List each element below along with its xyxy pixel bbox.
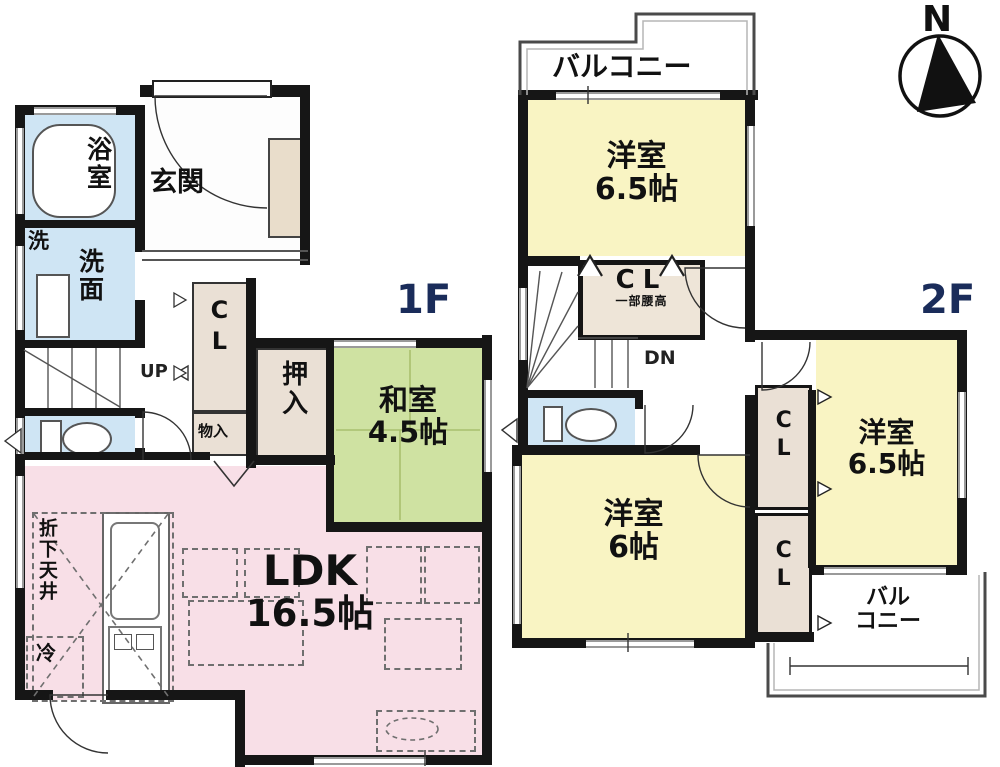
- stairs-up-label: UP: [140, 362, 168, 382]
- toilet-tank-1f: [40, 420, 62, 456]
- cl-2f-label: CL 一部腰高: [578, 266, 705, 308]
- wall-segment: [522, 390, 643, 398]
- balcony-bottom-label: バル コニー: [838, 586, 938, 634]
- washing-machine-pan: [36, 274, 70, 338]
- sofa-seat: [424, 546, 480, 604]
- window: [747, 126, 755, 226]
- ldk-size: 16.5帖: [220, 594, 400, 635]
- balcony-bottom-line2: コニー: [838, 610, 938, 634]
- vent-mark: [502, 419, 517, 442]
- bedroom-west-name: 洋室: [522, 498, 745, 531]
- lowered-ceiling-label: 折下天井: [36, 518, 57, 602]
- bedroom-west-label: 洋室 6帖: [522, 498, 745, 564]
- toilet-bowl-1f: [62, 422, 112, 456]
- closet-door-mark: [174, 366, 186, 380]
- wall-segment: [135, 408, 145, 418]
- floor-label-1f: 1F: [396, 278, 451, 322]
- bedroom-north-size: 6.5帖: [528, 173, 745, 206]
- floor-plan-canvas: 1F 玄関 浴室 洗 洗面 UP CL 物入 押入 和室 4.5帖 LDK 16…: [0, 0, 1000, 767]
- cl-lower-label: CL: [771, 538, 795, 594]
- ldk-name: LDK: [220, 548, 400, 594]
- wall-segment: [300, 85, 310, 265]
- window: [334, 340, 416, 348]
- wall-segment: [512, 445, 700, 455]
- wall-segment: [326, 522, 492, 532]
- compass-north-label: N: [922, 0, 952, 40]
- window: [824, 567, 946, 575]
- balcony-top-label: バルコニー: [552, 52, 691, 83]
- washitsu-size: 4.5帖: [334, 417, 482, 449]
- cl-1f-label: CL: [206, 296, 232, 358]
- bedroom-north-name: 洋室: [528, 140, 745, 173]
- window: [16, 128, 24, 214]
- floor-label-2f: 2F: [920, 278, 975, 322]
- cl-2f-name: CL: [578, 266, 705, 295]
- wall-segment: [15, 340, 145, 348]
- wall-segment: [755, 330, 967, 340]
- washroom-label: 洗面: [76, 248, 104, 304]
- genkan-step-line: [142, 259, 308, 261]
- fridge-label: 冷: [36, 642, 56, 664]
- cl-upper-label: CL: [771, 408, 795, 464]
- wall-segment: [752, 632, 814, 642]
- wall-segment: [135, 222, 145, 252]
- wall-segment: [326, 338, 334, 532]
- window: [16, 418, 24, 454]
- storage-label: 物入: [198, 423, 228, 440]
- window: [16, 476, 24, 588]
- bedroom-west-size: 6帖: [522, 531, 745, 564]
- cl-2f-note: 一部腰高: [578, 295, 705, 308]
- washitsu-name: 和室: [334, 385, 482, 417]
- window: [34, 107, 116, 115]
- compass-north-icon: [900, 34, 980, 116]
- stairs-dn-label: DN: [644, 348, 676, 369]
- window: [16, 246, 24, 330]
- window: [513, 466, 521, 624]
- oshiire-label: 押入: [278, 360, 307, 418]
- wall-segment: [246, 278, 256, 468]
- bedroom-east-label: 洋室 6.5帖: [816, 418, 957, 480]
- entrance-door-leaf: [152, 80, 272, 98]
- wall-segment: [15, 690, 53, 700]
- ldk-label: LDK 16.5帖: [220, 548, 400, 635]
- door-arc-bedroom-east: [762, 342, 810, 390]
- wall-segment: [135, 105, 145, 227]
- tv-board: [376, 710, 476, 752]
- window: [519, 288, 527, 360]
- genkan-step-line: [142, 250, 308, 252]
- window: [586, 640, 694, 648]
- laundry-label: 洗: [28, 230, 49, 253]
- wall-segment: [15, 408, 145, 416]
- wall-segment: [808, 390, 816, 568]
- bedroom-north-label: 洋室 6.5帖: [528, 140, 745, 206]
- wall-segment: [745, 395, 755, 648]
- window: [958, 392, 966, 498]
- toilet-bowl-2f: [565, 408, 617, 442]
- wall-segment: [518, 256, 580, 266]
- wall-segment: [106, 690, 245, 700]
- stairs-1f: [24, 348, 120, 408]
- window: [556, 92, 720, 100]
- toilet-tank-2f: [543, 406, 563, 442]
- bath-label: 浴室: [84, 136, 112, 192]
- shoe-cabinet: [268, 138, 302, 238]
- window: [484, 380, 492, 472]
- wall-segment: [15, 452, 210, 460]
- wall-segment: [15, 220, 145, 228]
- closet-door-mark: [174, 293, 186, 307]
- genkan-label: 玄関: [150, 168, 204, 198]
- ldk-notch-cover: [15, 700, 235, 767]
- window: [314, 757, 426, 765]
- wall-segment: [635, 395, 643, 409]
- up-arrow-icon: [176, 366, 188, 380]
- wall-segment: [250, 455, 335, 465]
- bedroom-east-size: 6.5帖: [816, 449, 957, 480]
- closet-door-mark: [818, 616, 831, 630]
- balcony-bottom-line1: バル: [838, 586, 938, 610]
- bedroom-east-name: 洋室: [816, 418, 957, 449]
- washitsu-label: 和室 4.5帖: [334, 385, 482, 449]
